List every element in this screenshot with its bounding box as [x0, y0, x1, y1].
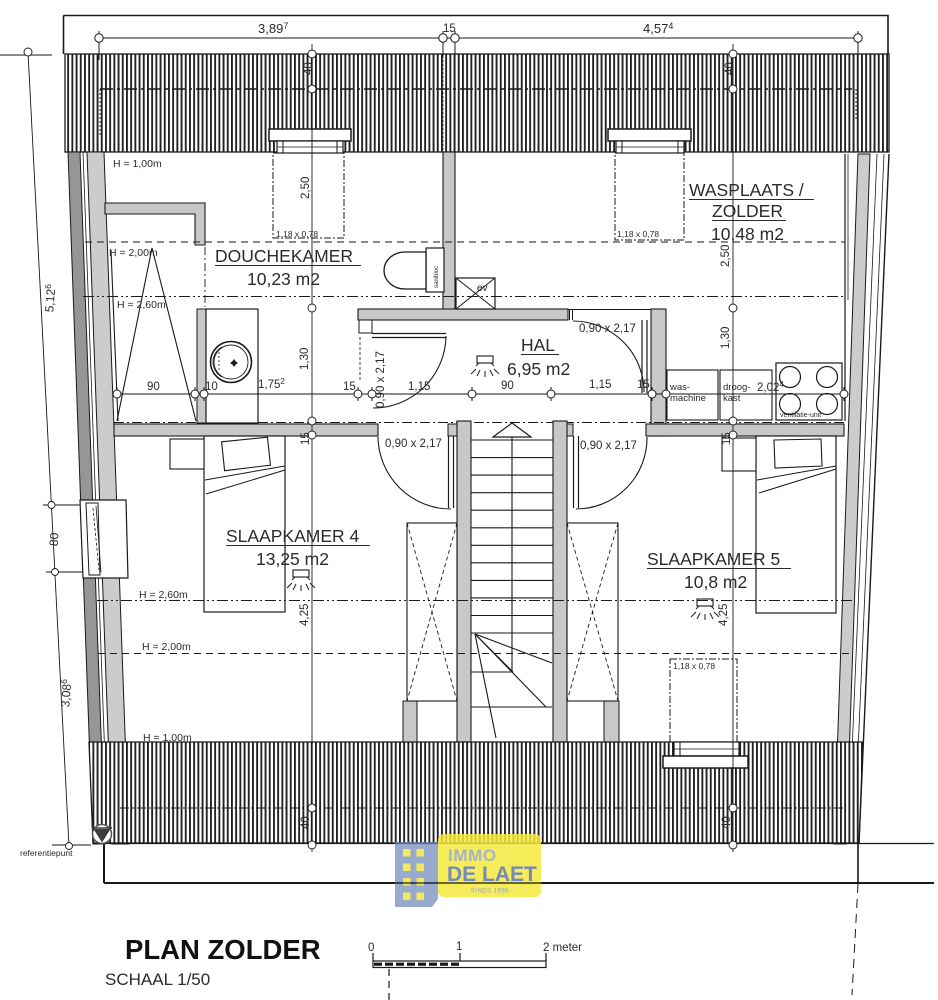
svg-text:HAL: HAL — [521, 335, 555, 355]
svg-text:3,086: 3,086 — [57, 678, 74, 707]
svg-text:10: 10 — [205, 381, 218, 393]
svg-text:H = 2,60m: H = 2,60m — [117, 299, 166, 311]
svg-text:10,48 m2: 10,48 m2 — [711, 224, 784, 244]
svg-text:0,90 x 2,17: 0,90 x 2,17 — [375, 351, 387, 408]
svg-text:40: 40 — [721, 816, 733, 829]
svg-text:referentiepunt: referentiepunt — [20, 848, 73, 858]
svg-text:2,50: 2,50 — [720, 245, 732, 267]
svg-text:4,25: 4,25 — [299, 604, 311, 626]
svg-text:80: 80 — [47, 532, 62, 547]
svg-text:ev: ev — [477, 283, 488, 294]
svg-text:1,18 x 0,78: 1,18 x 0,78 — [617, 229, 659, 239]
svg-text:0,90 x 2,17: 0,90 x 2,17 — [580, 440, 637, 452]
svg-text:0: 0 — [368, 942, 374, 954]
svg-text:90: 90 — [501, 380, 514, 392]
svg-text:1,30: 1,30 — [720, 327, 732, 349]
svg-text:1,15: 1,15 — [589, 379, 611, 391]
svg-text:sanibloc: sanibloc — [434, 266, 440, 288]
svg-text:kast: kast — [723, 393, 741, 404]
svg-text:40: 40 — [300, 816, 312, 829]
svg-text:10,8 m2: 10,8 m2 — [684, 572, 747, 592]
svg-text:4,574: 4,574 — [643, 21, 673, 36]
svg-text:15: 15 — [721, 432, 733, 445]
svg-text:1,30: 1,30 — [299, 348, 311, 370]
svg-text:40: 40 — [724, 62, 736, 75]
svg-text:0,90 x 2,17: 0,90 x 2,17 — [385, 438, 442, 450]
svg-text:- SINDS 1996 -: - SINDS 1996 - — [466, 889, 514, 895]
svg-text:15: 15 — [637, 379, 650, 391]
svg-text:15: 15 — [443, 23, 456, 35]
svg-text:1,752: 1,752 — [258, 377, 285, 391]
svg-text:was-: was- — [669, 382, 690, 393]
svg-text:SCHAAL 1/50: SCHAAL 1/50 — [105, 970, 210, 989]
svg-text:1,18 x 0,78: 1,18 x 0,78 — [673, 661, 715, 671]
svg-text:ZOLDER: ZOLDER — [712, 201, 783, 221]
svg-text:H = 2,60m: H = 2,60m — [139, 589, 188, 601]
svg-text:1: 1 — [456, 941, 462, 953]
svg-text:WASPLAATS /: WASPLAATS / — [689, 180, 804, 200]
svg-text:H = 2,00m: H = 2,00m — [142, 641, 191, 653]
svg-text:DOUCHEKAMER: DOUCHEKAMER — [215, 246, 353, 266]
svg-text:2,50: 2,50 — [300, 177, 312, 199]
svg-text:H = 1,00m: H = 1,00m — [113, 158, 162, 170]
svg-text:0,90 x 2,17: 0,90 x 2,17 — [579, 323, 636, 335]
svg-text:3,897: 3,897 — [258, 21, 288, 36]
svg-text:droog-: droog- — [723, 382, 750, 393]
svg-text:15: 15 — [300, 432, 312, 445]
svg-text:4,25: 4,25 — [718, 604, 730, 626]
svg-text:6,95 m2: 6,95 m2 — [507, 359, 570, 379]
svg-text:10,23 m2: 10,23 m2 — [247, 269, 320, 289]
svg-text:2 meter: 2 meter — [543, 942, 582, 954]
svg-text:SLAAPKAMER 4: SLAAPKAMER 4 — [226, 526, 360, 546]
svg-text:SLAAPKAMER 5: SLAAPKAMER 5 — [647, 549, 780, 569]
svg-text:machine: machine — [670, 393, 706, 404]
svg-text:5,126: 5,126 — [41, 283, 58, 312]
svg-text:15: 15 — [343, 381, 356, 393]
svg-text:PLAN ZOLDER: PLAN ZOLDER — [125, 934, 321, 965]
svg-text:1,15: 1,15 — [408, 381, 430, 393]
svg-text:ventilatie-unit: ventilatie-unit — [780, 412, 821, 419]
svg-text:90: 90 — [147, 381, 160, 393]
svg-text:1,18 x 0,78: 1,18 x 0,78 — [276, 229, 318, 239]
svg-text:H = 2,00m: H = 2,00m — [109, 247, 158, 259]
svg-text:13,25 m2: 13,25 m2 — [256, 549, 329, 569]
svg-text:40: 40 — [303, 62, 315, 75]
